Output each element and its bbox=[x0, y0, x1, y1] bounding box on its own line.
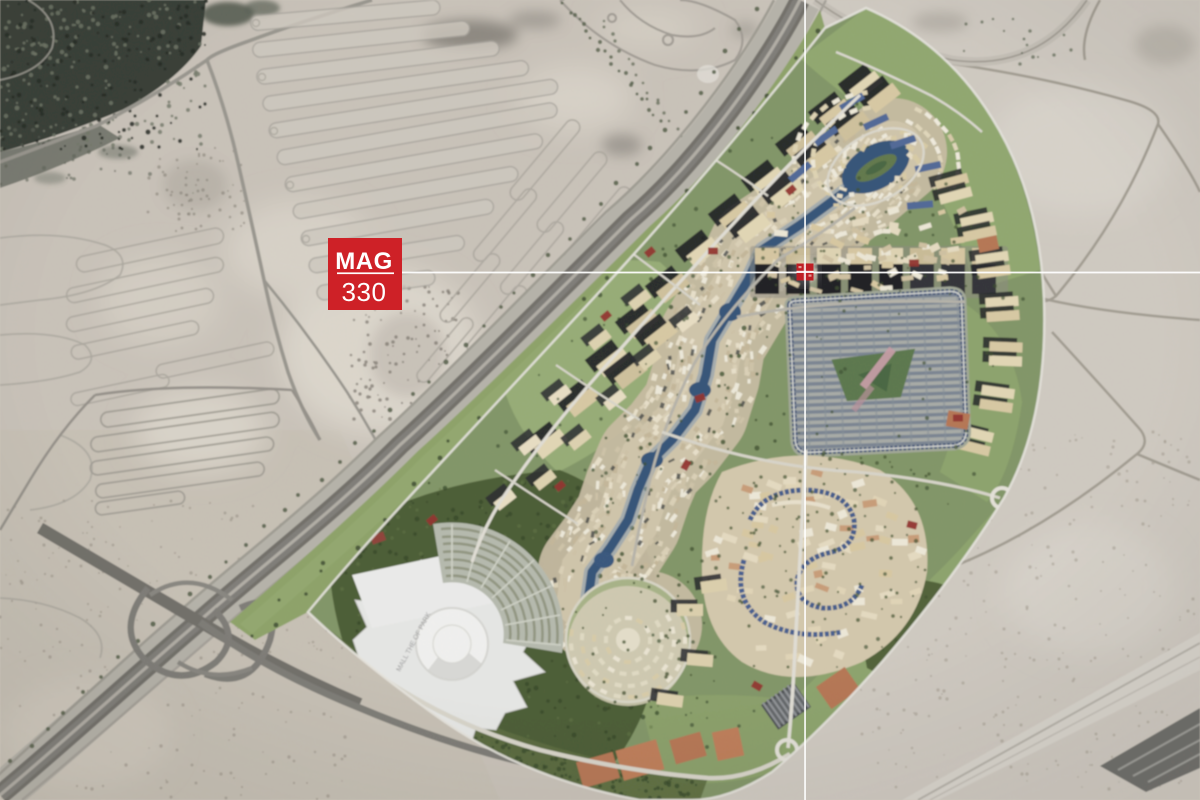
svg-text:MAG: MAG bbox=[335, 248, 393, 275]
svg-text:330: 330 bbox=[342, 277, 387, 307]
